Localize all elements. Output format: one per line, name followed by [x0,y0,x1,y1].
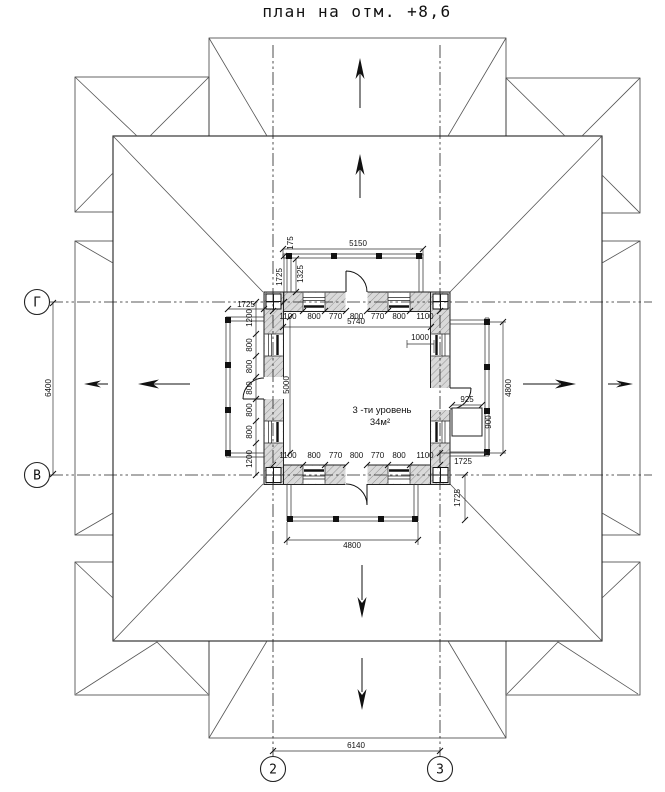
dim-label-top-seg: 800 [307,312,321,321]
dim-label-1725-right: 1725 [453,489,462,507]
drawing-title: план на отм. +8,6 [262,2,451,21]
balcony-bottom [287,484,418,522]
dim-label-left-seg: 800 [245,359,254,373]
railing-post [376,253,382,259]
railing-post [331,253,337,259]
window-left-2 [265,421,283,443]
dim-label-top-seg: 1100 [279,312,297,321]
room-label: 3 -ти уровень 34м² [352,405,411,428]
dim-label-925: 925 [460,395,474,404]
chimney-shaft [452,408,482,436]
railing-post [333,516,339,522]
railing-post [225,450,231,456]
dim-label-6400: 6400 [44,379,53,397]
dim-label-left-seg: 1200 [245,450,254,468]
dim-label-1000: 1000 [411,333,429,342]
room-area: 34м² [370,417,390,428]
dim-label-left-seg: 1200 [245,309,254,327]
dim-label-top-seg: 770 [329,312,343,321]
dim-label-5150: 5150 [349,239,367,248]
dim-label-bottom-seg: 1100 [279,451,297,460]
dim-line-5150 [283,249,423,256]
dim-label-1725-bottomright: 1725 [454,457,472,466]
dim-label-top-seg: 770 [371,312,385,321]
dim-label-bottom-seg: 770 [371,451,385,460]
gable-left-hips [75,241,113,535]
dim-label-top-seg: 800 [350,312,364,321]
floor-plan-page: план на отм. +8,6 [0,0,665,792]
arrow-down-outer-icon [358,689,367,710]
dim-label-6140: 6140 [347,741,365,750]
railing-post [225,407,231,413]
railing-post [484,449,490,455]
dim-label-bottom-seg: 1100 [416,451,434,460]
window-left-1 [265,334,283,356]
roof-outlines [75,38,640,738]
axis-circles: Г В 2 3 [25,290,453,782]
dim-label-left-seg: 800 [245,403,254,417]
gable-right [602,241,640,535]
arrow-down-inner-icon [358,597,367,618]
railing-post [412,516,418,522]
main-roof-hips [113,136,602,641]
dim-label-175: 175 [286,236,295,250]
dim-label-4800-right: 4800 [504,379,513,397]
gable-bottom [209,641,506,738]
railing-post [416,253,422,259]
dim-label-top-seg: 800 [392,312,406,321]
gable-left [75,241,113,535]
railing-post [286,253,292,259]
dim-label-left-seg: 800 [245,338,254,352]
dim-label-bottom-seg: 770 [329,451,343,460]
gable-right-hips [602,241,640,535]
corner-top-left-hips [75,77,209,212]
gable-top-hips [209,38,506,136]
axis-label-g: Г [33,296,41,311]
dim-label-top-seg: 1100 [416,312,434,321]
gable-bottom-hips [209,641,506,738]
floor-plan-canvas: план на отм. +8,6 [0,0,665,792]
railing-post [378,516,384,522]
dim-label-bottom-seg: 800 [350,451,364,460]
corner-top-right-hips [506,78,640,213]
axis-label-v: В [33,469,41,484]
dim-label-900: 900 [484,415,493,429]
railing-post [484,408,490,414]
dim-label-bottom-seg: 800 [307,451,321,460]
door-right-opening [430,388,452,410]
railing-post [225,317,231,323]
dim-label-4800-bottom: 4800 [343,541,361,550]
axis-lines [50,45,652,756]
railing-post [484,364,490,370]
dim-label-1725-left: 1725 [237,300,255,309]
slope-arrows [84,58,633,710]
column-marker-top-right [433,294,448,309]
door-top-leaf [346,271,367,292]
roof-diagonals [75,38,640,738]
axis-label-2: 2 [269,763,277,778]
dim-label-left-seg: 800 [245,425,254,439]
corner-bottom-right-hips [507,562,640,694]
dim-label-left-seg: 800 [245,381,254,395]
room-name: 3 -ти уровень [352,405,411,416]
dim-label-1325: 1325 [296,265,305,283]
gable-top [209,38,506,136]
column-marker-top-left [266,294,281,309]
railing-post [225,362,231,368]
corner-bottom-left-hips [75,562,208,694]
railing-post [287,516,293,522]
axis-label-3: 3 [436,763,444,778]
dim-label-1725-top: 1725 [275,268,284,286]
door-bottom-leaf [346,484,367,505]
dim-label-5000: 5000 [282,376,291,394]
dim-label-bottom-seg: 800 [392,451,406,460]
